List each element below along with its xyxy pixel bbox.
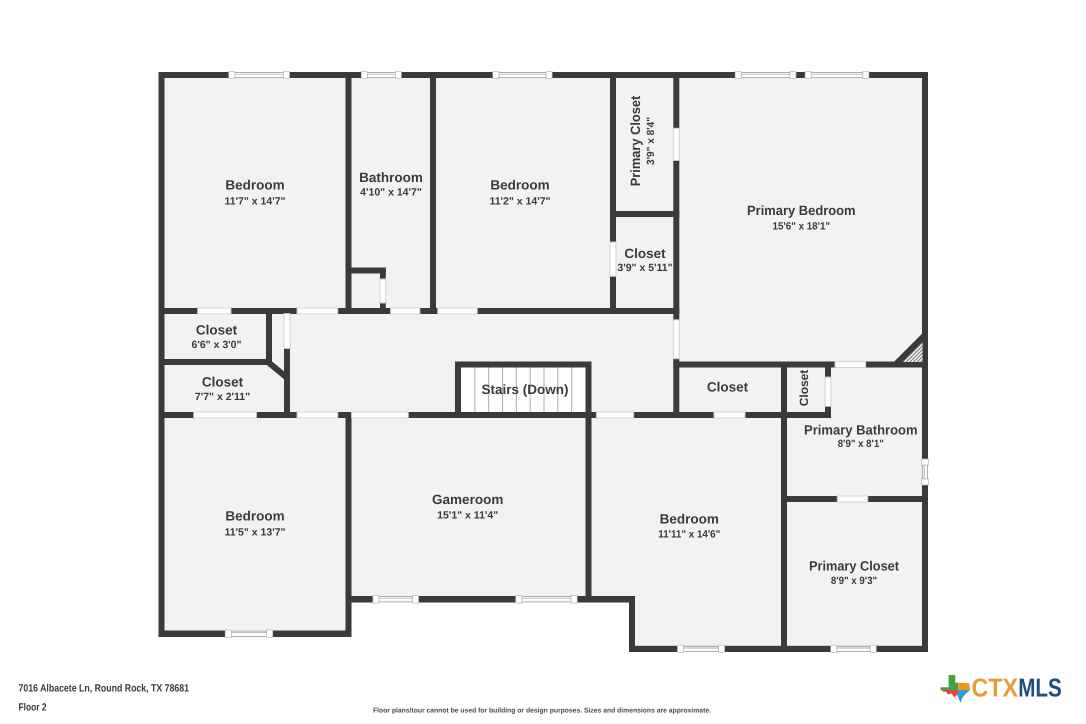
svg-text:MLS: MLS xyxy=(1018,672,1061,702)
svg-text:Closet: Closet xyxy=(202,375,244,390)
svg-text:Bedroom: Bedroom xyxy=(660,511,719,526)
svg-text:Closet: Closet xyxy=(624,246,666,261)
svg-text:Closet: Closet xyxy=(797,370,811,407)
svg-text:CTX: CTX xyxy=(972,672,1019,702)
svg-text:8'9" x 9'3": 8'9" x 9'3" xyxy=(831,575,877,587)
svg-text:Floor plans/tour cannot be use: Floor plans/tour cannot be used for buil… xyxy=(373,708,711,715)
svg-text:6'6" x 3'0": 6'6" x 3'0" xyxy=(192,339,242,351)
svg-text:Primary Bedroom: Primary Bedroom xyxy=(747,203,856,218)
svg-text:Bedroom: Bedroom xyxy=(225,178,284,193)
svg-text:7'7" x 2'11": 7'7" x 2'11" xyxy=(195,391,250,403)
svg-text:15'1" x 11'4": 15'1" x 11'4" xyxy=(437,510,498,522)
svg-text:Bedroom: Bedroom xyxy=(225,509,284,524)
svg-text:11'11" x 14'6": 11'11" x 14'6" xyxy=(658,528,720,540)
svg-text:8'9" x 8'1": 8'9" x 8'1" xyxy=(838,438,884,450)
svg-text:Primary Bathroom: Primary Bathroom xyxy=(804,422,918,437)
svg-text:Primary Closet: Primary Closet xyxy=(628,95,643,186)
svg-text:Gameroom: Gameroom xyxy=(432,492,503,507)
svg-text:4'10" x 14'7": 4'10" x 14'7" xyxy=(360,186,422,198)
svg-text:Stairs (Down): Stairs (Down) xyxy=(481,382,568,397)
svg-text:7016 Albacete Ln, Round Rock,: 7016 Albacete Ln, Round Rock, TX 78681 xyxy=(19,682,190,694)
svg-text:Bathroom: Bathroom xyxy=(359,170,423,185)
svg-text:Bedroom: Bedroom xyxy=(490,178,549,193)
svg-text:11'2" x 14'7": 11'2" x 14'7" xyxy=(489,195,550,207)
svg-text:Closet: Closet xyxy=(196,323,238,338)
svg-text:11'5" x 13'7": 11'5" x 13'7" xyxy=(224,527,285,539)
svg-text:15'6" x 18'1": 15'6" x 18'1" xyxy=(773,220,831,232)
svg-text:Primary Closet: Primary Closet xyxy=(809,558,899,573)
svg-text:3'9" x 8'4": 3'9" x 8'4" xyxy=(645,117,657,165)
svg-text:11'7" x 14'7": 11'7" x 14'7" xyxy=(224,195,285,207)
svg-text:Closet: Closet xyxy=(707,380,749,395)
svg-text:Floor 2: Floor 2 xyxy=(19,701,47,713)
svg-text:3'9" x 5'11": 3'9" x 5'11" xyxy=(617,262,672,274)
